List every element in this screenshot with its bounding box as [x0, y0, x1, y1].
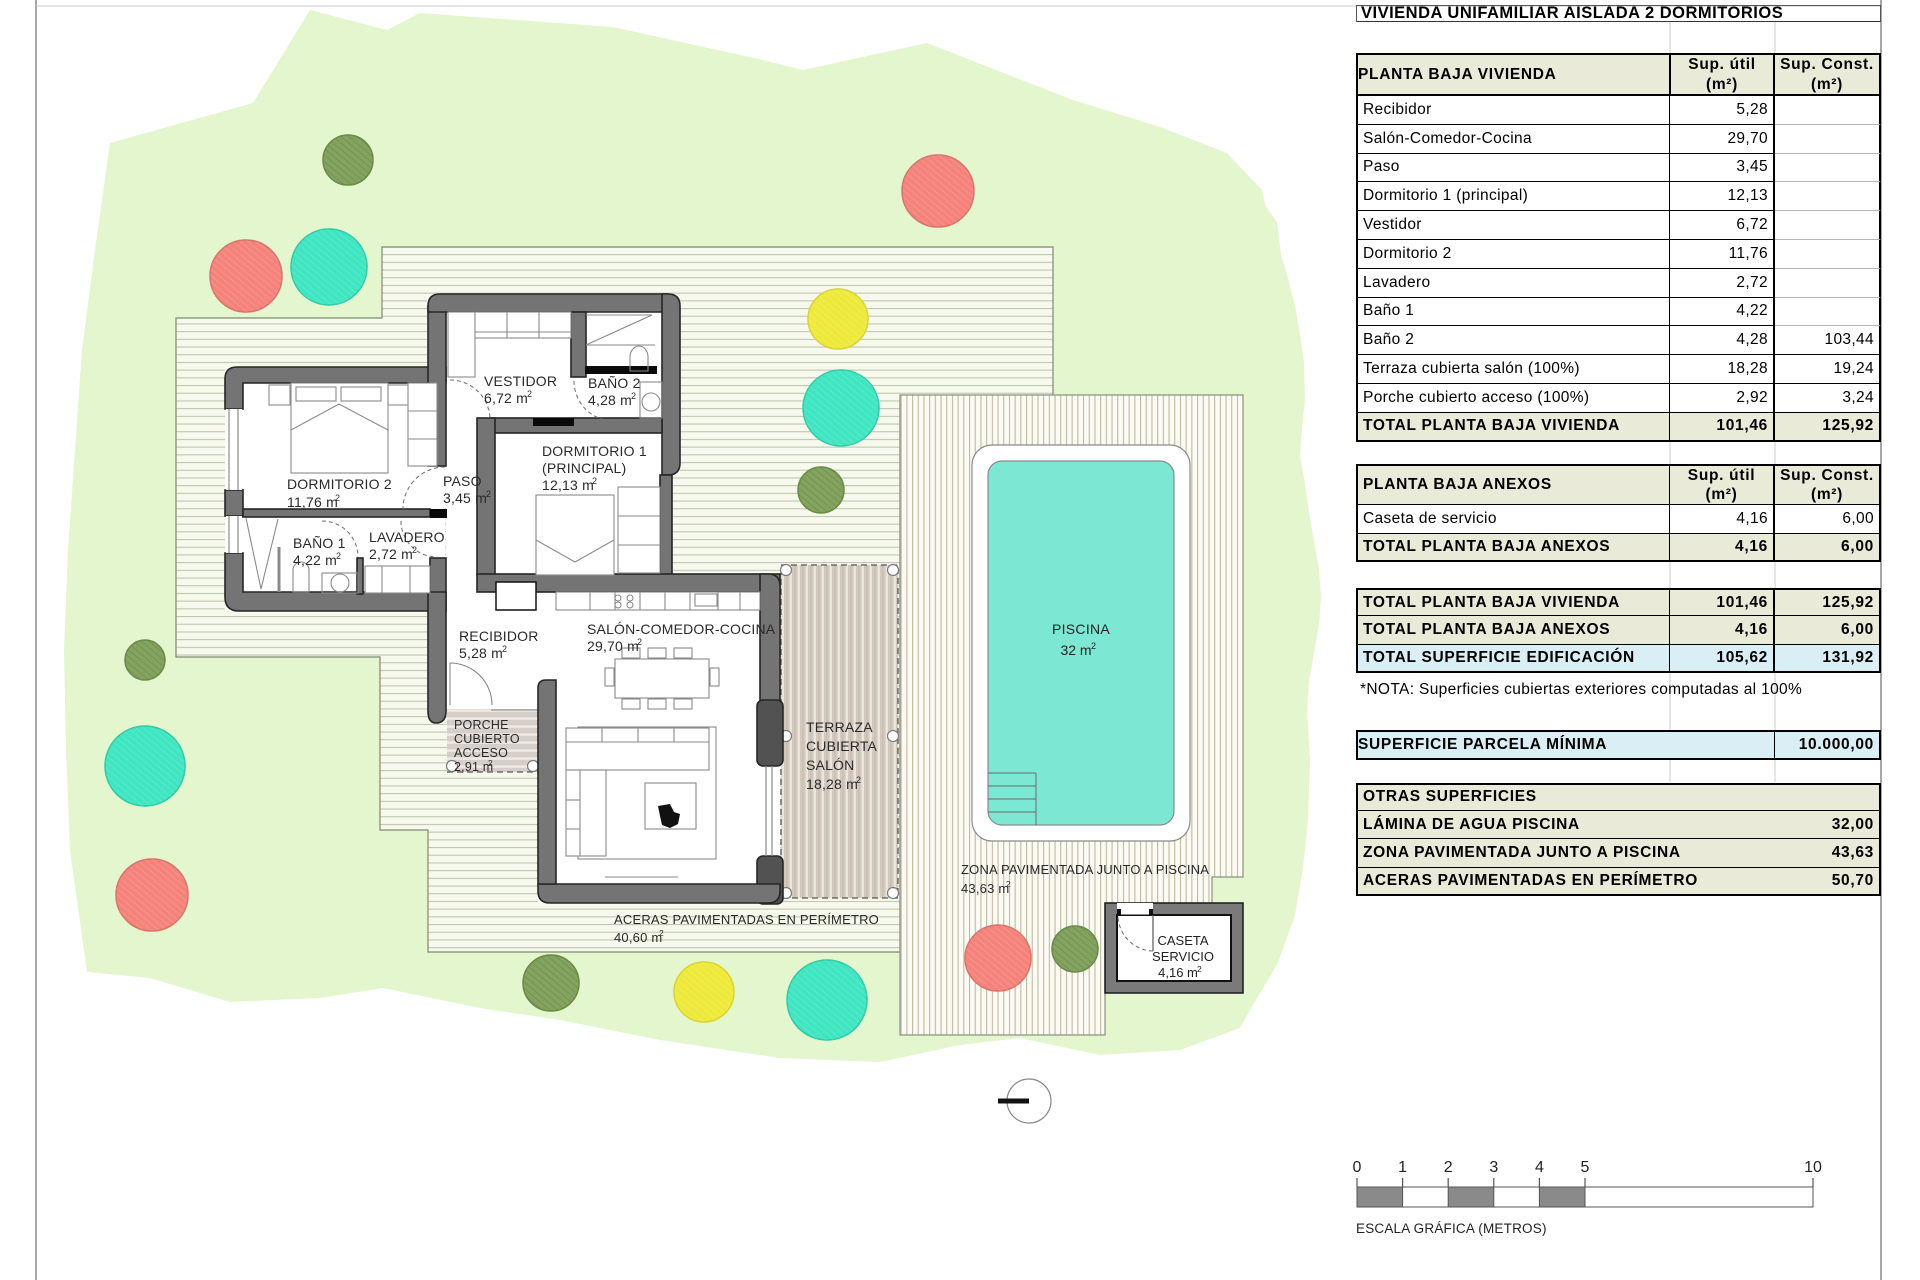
- svg-text:2: 2: [335, 493, 340, 503]
- svg-text:11,76 m: 11,76 m: [287, 494, 338, 510]
- svg-text:SALÓN: SALÓN: [806, 757, 854, 773]
- svg-text:ZONA PAVIMENTADA JUNTO A PISCI: ZONA PAVIMENTADA JUNTO A PISCINA: [961, 862, 1209, 877]
- svg-text:ACERAS PAVIMENTADAS EN PERÍMET: ACERAS PAVIMENTADAS EN PERÍMETRO: [614, 912, 879, 927]
- svg-text:(PRINCIPAL): (PRINCIPAL): [542, 460, 626, 476]
- svg-text:2: 2: [412, 545, 417, 555]
- svg-text:10: 10: [1804, 1159, 1822, 1176]
- svg-text:4: 4: [1535, 1159, 1544, 1176]
- svg-text:2: 2: [527, 389, 532, 399]
- svg-text:ESCALA GRÁFICA (METROS): ESCALA GRÁFICA (METROS): [1356, 1221, 1547, 1236]
- svg-text:4,22 m: 4,22 m: [293, 552, 337, 568]
- svg-text:PISCINA: PISCINA: [1052, 621, 1110, 637]
- svg-text:2: 2: [659, 928, 664, 938]
- svg-text:VESTIDOR: VESTIDOR: [484, 373, 557, 389]
- svg-text:BAÑO 2: BAÑO 2: [588, 375, 641, 391]
- svg-text:1: 1: [1398, 1159, 1407, 1176]
- svg-text:2: 2: [1444, 1159, 1453, 1176]
- svg-text:0: 0: [1353, 1159, 1362, 1176]
- svg-text:CUBIERTO: CUBIERTO: [454, 732, 520, 746]
- svg-text:CUBIERTA: CUBIERTA: [806, 738, 878, 754]
- svg-text:PORCHE: PORCHE: [454, 718, 509, 732]
- svg-text:18,28 m: 18,28 m: [806, 776, 858, 792]
- svg-text:SALÓN-COMEDOR-COCINA: SALÓN-COMEDOR-COCINA: [587, 621, 776, 637]
- svg-text:PASO: PASO: [443, 473, 482, 489]
- svg-text:CASETA: CASETA: [1157, 933, 1208, 948]
- svg-text:2: 2: [592, 476, 597, 486]
- svg-text:2: 2: [488, 759, 493, 768]
- svg-text:2: 2: [637, 637, 642, 647]
- svg-text:5,28 m: 5,28 m: [459, 645, 503, 661]
- svg-text:43,63 m: 43,63 m: [961, 881, 1009, 896]
- svg-text:TERRAZA: TERRAZA: [806, 719, 873, 735]
- svg-text:32 m: 32 m: [1060, 642, 1091, 658]
- svg-text:2: 2: [502, 644, 507, 654]
- svg-text:4,28 m: 4,28 m: [588, 392, 632, 408]
- svg-text:BAÑO 1: BAÑO 1: [293, 535, 346, 551]
- svg-text:2: 2: [1197, 964, 1202, 974]
- svg-text:4,16 m: 4,16 m: [1158, 965, 1198, 980]
- svg-text:LAVADERO: LAVADERO: [369, 529, 445, 545]
- svg-text:DORMITORIO 2: DORMITORIO 2: [287, 476, 392, 492]
- svg-text:5: 5: [1581, 1159, 1590, 1176]
- svg-text:DORMITORIO 1: DORMITORIO 1: [542, 443, 647, 459]
- svg-text:3: 3: [1489, 1159, 1498, 1176]
- svg-text:3,45 m: 3,45 m: [443, 490, 487, 506]
- svg-text:29,70 m: 29,70 m: [587, 638, 639, 654]
- svg-text:6,72 m: 6,72 m: [484, 390, 528, 406]
- svg-text:40,60 m: 40,60 m: [614, 930, 662, 945]
- svg-text:ACCESO: ACCESO: [454, 746, 508, 760]
- svg-text:2: 2: [856, 775, 861, 785]
- svg-text:2: 2: [1091, 641, 1096, 651]
- svg-text:SERVICIO: SERVICIO: [1152, 949, 1214, 964]
- svg-text:2: 2: [336, 551, 341, 561]
- svg-text:RECIBIDOR: RECIBIDOR: [459, 628, 539, 644]
- svg-text:2,72 m: 2,72 m: [369, 546, 413, 562]
- svg-text:2: 2: [1006, 879, 1011, 889]
- svg-text:2: 2: [631, 391, 636, 401]
- svg-text:2: 2: [486, 489, 491, 499]
- svg-text:12,13 m: 12,13 m: [542, 477, 594, 493]
